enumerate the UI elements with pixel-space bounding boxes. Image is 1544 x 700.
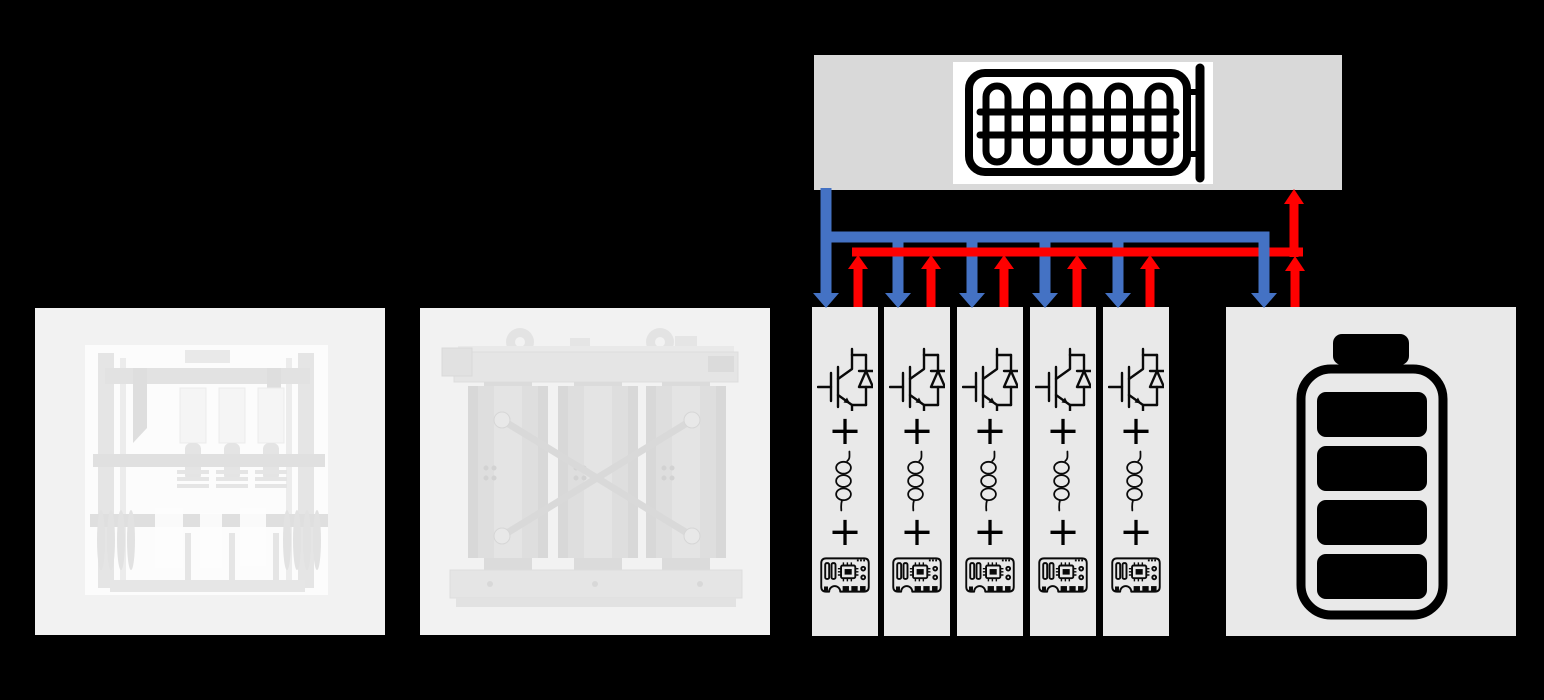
control-board-icon bbox=[962, 556, 1018, 594]
inductor-icon bbox=[1045, 450, 1081, 512]
control-board-icon bbox=[1035, 556, 1091, 594]
igbt-with-diode-icon bbox=[889, 347, 945, 411]
converter-module-2: + + bbox=[884, 307, 950, 636]
heating-element-icon bbox=[953, 62, 1213, 184]
inductor-icon bbox=[1118, 450, 1154, 512]
switchgear-photo bbox=[35, 308, 385, 635]
diagram-canvas: + + + + + + + + + + bbox=[0, 0, 1544, 700]
igbt-with-diode-icon bbox=[817, 347, 873, 411]
battery-panel bbox=[1226, 307, 1516, 636]
converter-module-1: + + bbox=[812, 307, 878, 636]
converter-module-5: + + bbox=[1103, 307, 1169, 636]
converter-module-3: + + bbox=[957, 307, 1023, 636]
heating-element-icon-panel bbox=[953, 62, 1213, 184]
control-board-icon bbox=[889, 556, 945, 594]
plus-symbol: + bbox=[973, 414, 1007, 448]
plus-symbol: + bbox=[1119, 515, 1153, 549]
inductor-icon bbox=[972, 450, 1008, 512]
plus-symbol: + bbox=[828, 414, 862, 448]
plus-symbol: + bbox=[828, 515, 862, 549]
battery-icon bbox=[1256, 316, 1486, 626]
blue-flow-bus bbox=[813, 188, 1270, 308]
control-board-icon bbox=[817, 556, 873, 594]
plus-symbol: + bbox=[973, 515, 1007, 549]
switchgear-photo-panel bbox=[35, 308, 385, 635]
red-flow-bus bbox=[848, 189, 1305, 307]
plus-symbol: + bbox=[900, 515, 934, 549]
igbt-with-diode-icon bbox=[1108, 347, 1164, 411]
inductor-icon bbox=[899, 450, 935, 512]
converter-module-4: + + bbox=[1030, 307, 1096, 636]
control-board-icon bbox=[1108, 556, 1164, 594]
transformer-photo bbox=[420, 308, 770, 635]
plus-symbol: + bbox=[1046, 515, 1080, 549]
igbt-with-diode-icon bbox=[962, 347, 1018, 411]
heater-load-panel bbox=[814, 55, 1342, 190]
plus-symbol: + bbox=[900, 414, 934, 448]
blue-battery-drop bbox=[1251, 232, 1277, 308]
plus-symbol: + bbox=[1119, 414, 1153, 448]
igbt-with-diode-icon bbox=[1035, 347, 1091, 411]
inductor-icon bbox=[827, 450, 863, 512]
transformer-photo-panel bbox=[420, 308, 770, 635]
plus-symbol: + bbox=[1046, 414, 1080, 448]
